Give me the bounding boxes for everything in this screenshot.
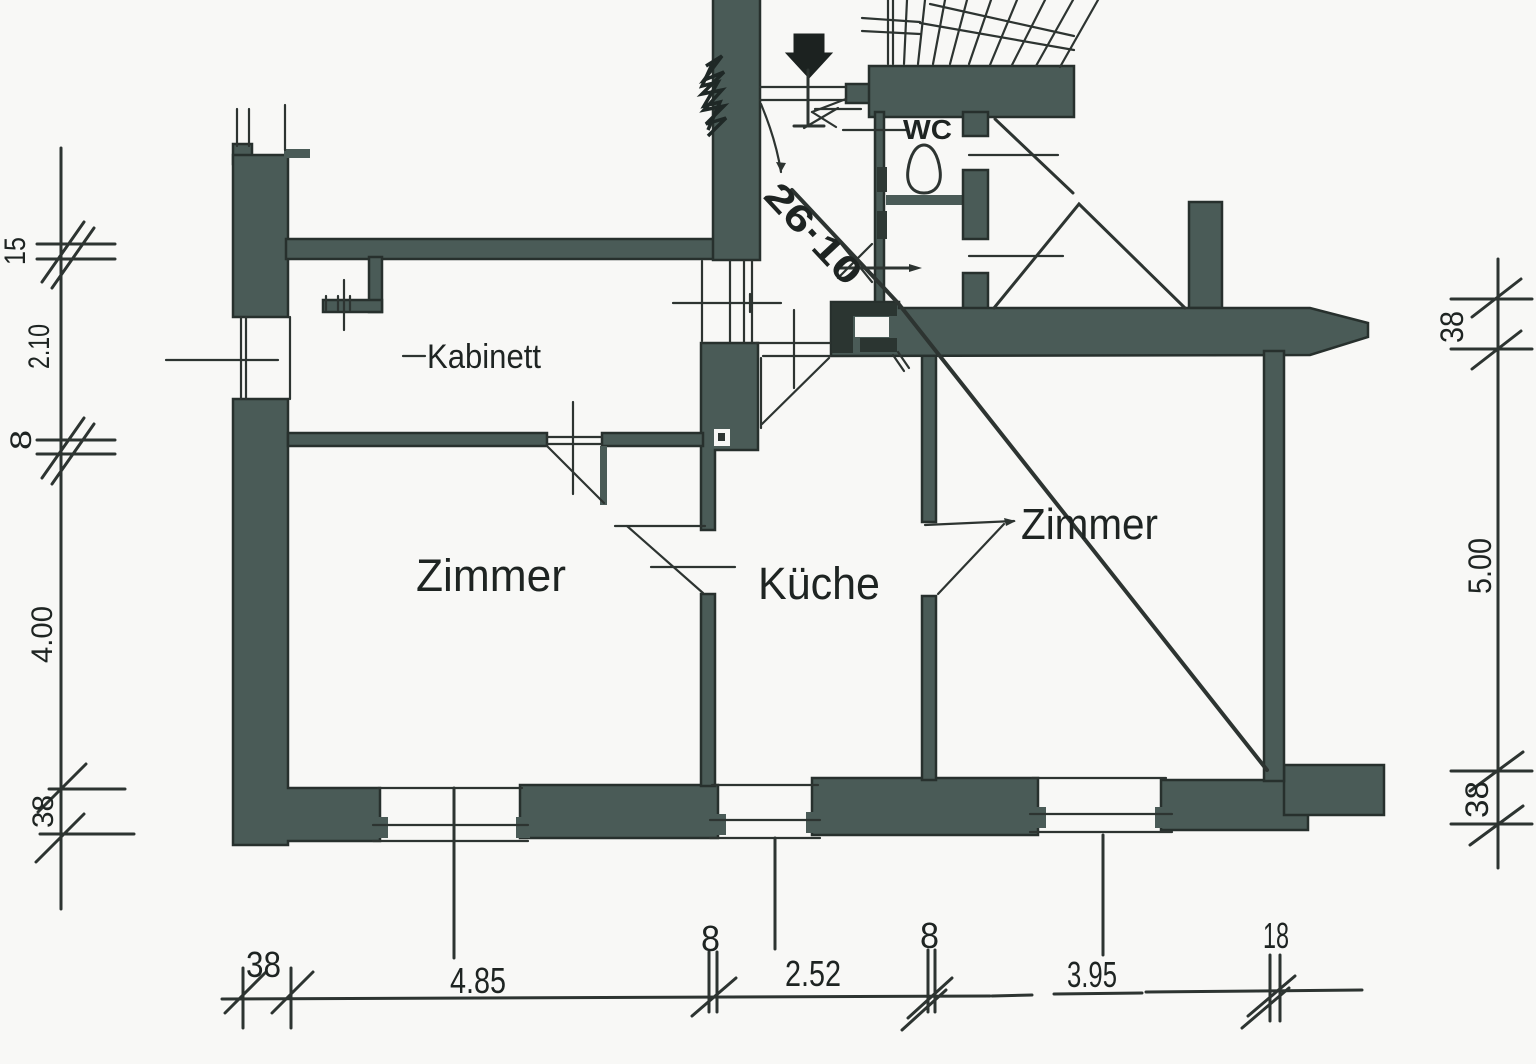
svg-text:Küche: Küche (758, 558, 880, 609)
svg-text:38: 38 (246, 944, 281, 985)
svg-text:8: 8 (920, 915, 939, 956)
svg-text:Zimmer: Zimmer (416, 550, 566, 601)
svg-text:38: 38 (1459, 781, 1495, 818)
svg-text:38: 38 (27, 795, 60, 828)
svg-text:15: 15 (0, 237, 32, 265)
svg-text:2.52: 2.52 (785, 953, 841, 994)
svg-text:4.85: 4.85 (450, 960, 506, 1001)
svg-text:Zimmer: Zimmer (1021, 500, 1158, 549)
svg-text:4.00: 4.00 (26, 606, 59, 663)
svg-text:WC: WC (903, 114, 952, 145)
svg-text:8: 8 (5, 430, 38, 450)
svg-text:3.95: 3.95 (1067, 954, 1117, 995)
svg-text:5.00: 5.00 (1462, 538, 1498, 594)
svg-text:8: 8 (701, 918, 720, 959)
svg-text:2.10: 2.10 (23, 324, 56, 369)
svg-text:38: 38 (1434, 311, 1470, 343)
svg-text:Kabinett: Kabinett (427, 338, 542, 376)
svg-text:18: 18 (1263, 915, 1289, 956)
